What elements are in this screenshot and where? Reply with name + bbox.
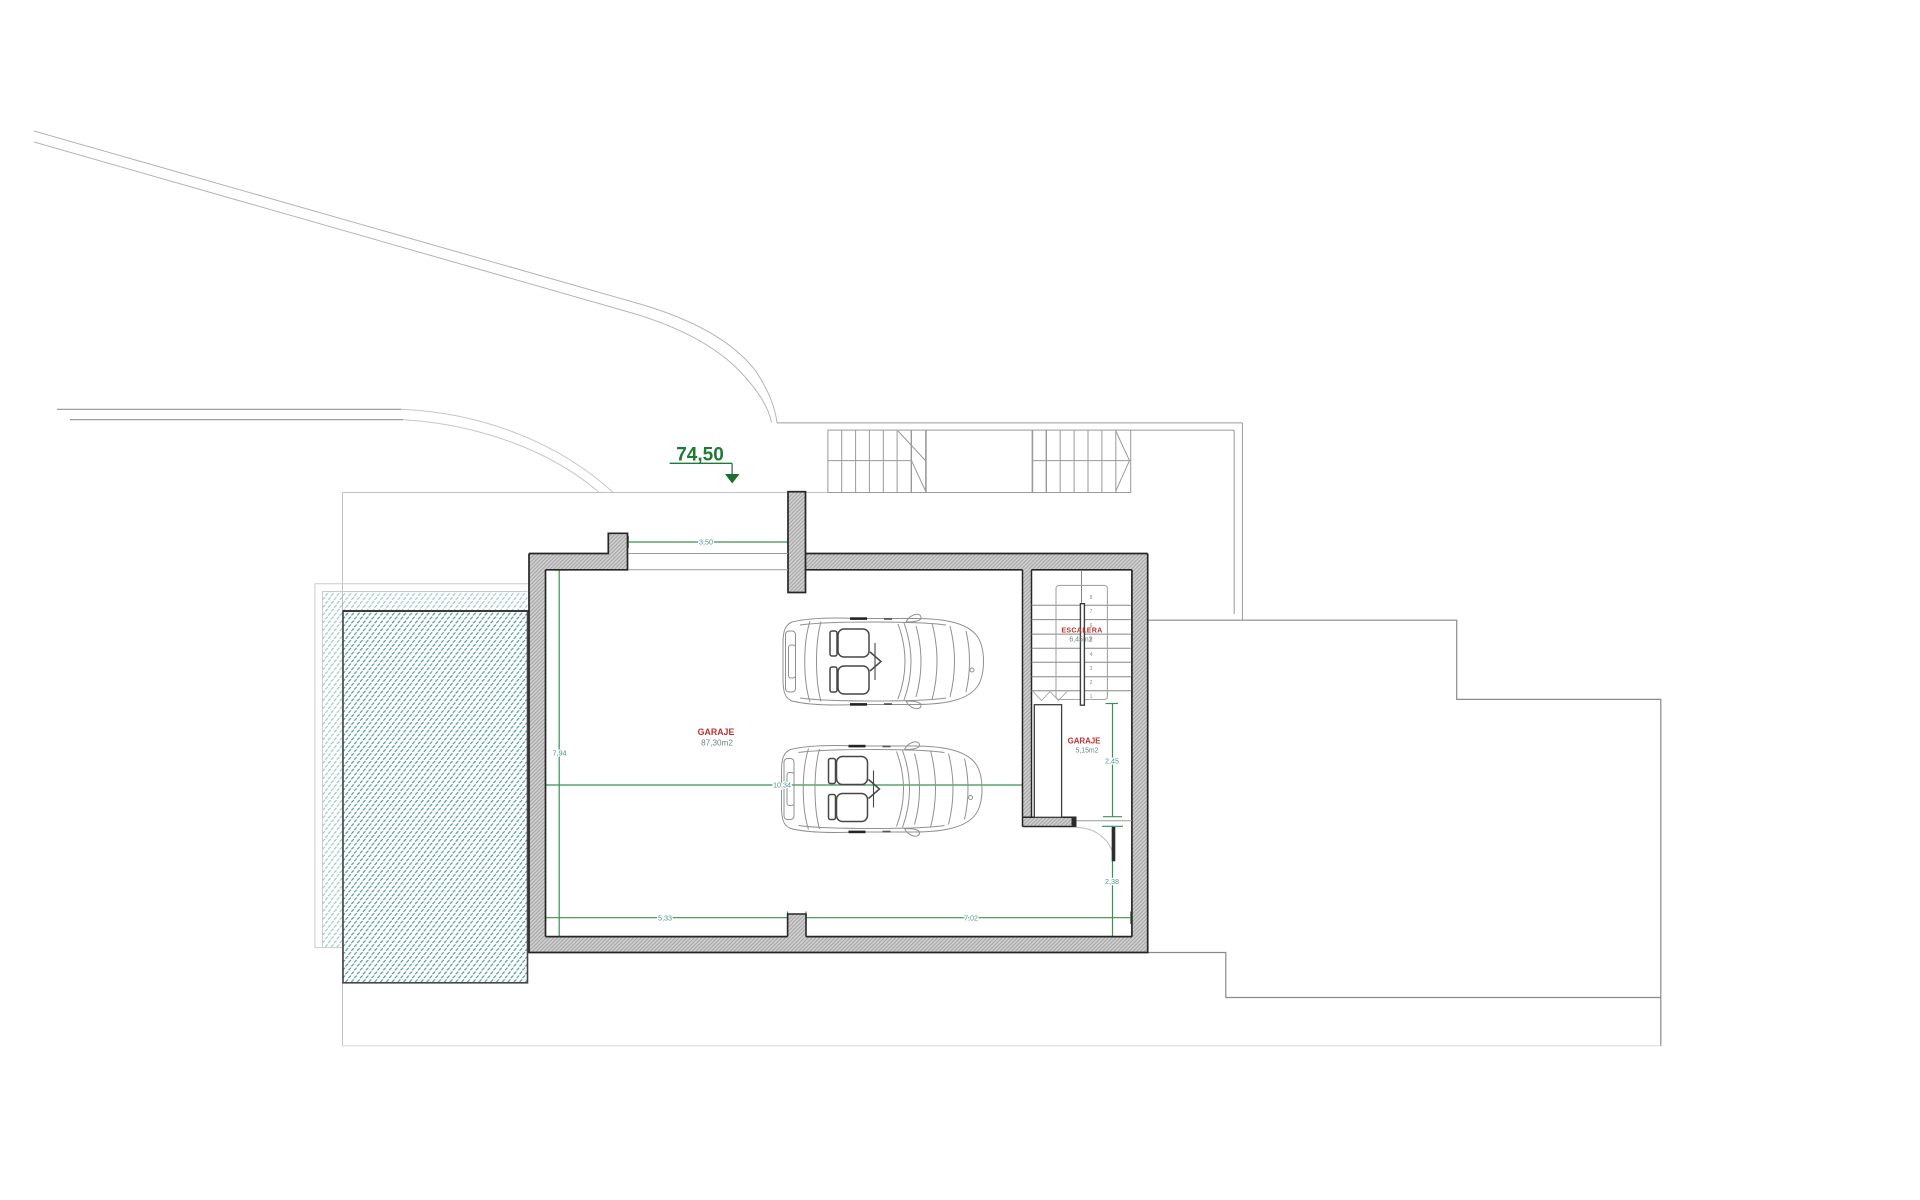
svg-text:2: 2: [1090, 680, 1093, 686]
svg-text:ESCALERA: ESCALERA: [1061, 626, 1102, 635]
svg-text:7,02: 7,02: [964, 913, 978, 922]
svg-text:5,33: 5,33: [658, 913, 672, 922]
svg-text:74,50: 74,50: [676, 445, 724, 466]
svg-text:3,50: 3,50: [699, 538, 713, 547]
svg-text:GARAJE: GARAJE: [698, 727, 735, 737]
svg-text:87,30m2: 87,30m2: [701, 739, 733, 748]
svg-text:6,45m2: 6,45m2: [1069, 637, 1092, 644]
svg-text:1: 1: [1090, 694, 1093, 700]
svg-text:3: 3: [1090, 666, 1093, 672]
svg-text:5,15m2: 5,15m2: [1076, 747, 1099, 754]
svg-text:2,45: 2,45: [1105, 757, 1119, 766]
svg-text:4: 4: [1090, 652, 1093, 658]
svg-text:GARAJE: GARAJE: [1068, 737, 1102, 746]
svg-text:10,34: 10,34: [773, 781, 791, 790]
svg-text:7,94: 7,94: [553, 749, 567, 758]
svg-text:8: 8: [1090, 595, 1093, 601]
svg-text:2,38: 2,38: [1105, 877, 1119, 886]
svg-text:7: 7: [1090, 609, 1093, 615]
